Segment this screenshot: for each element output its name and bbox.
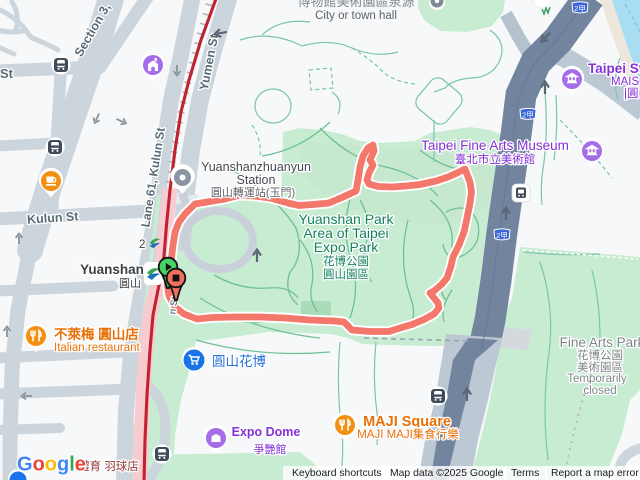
svg-text:Taipei St: Taipei St — [588, 61, 640, 76]
svg-text:美術園區: 美術園區 — [577, 360, 623, 374]
svg-text:MAJI MAJI集食行樂: MAJI MAJI集食行樂 — [357, 427, 459, 441]
svg-text:圓山: 圓山 — [119, 277, 141, 290]
svg-text:Yuanshanzhuanyun: Yuanshanzhuanyun — [201, 160, 311, 174]
svg-text:Italian restaurant: Italian restaurant — [54, 342, 140, 354]
svg-text:St: St — [0, 66, 14, 81]
svg-text:花博公園: 花博公園 — [323, 255, 369, 268]
svg-text:Keyboard shortcuts: Keyboard shortcuts — [292, 468, 382, 479]
svg-text:Expo Park: Expo Park — [314, 239, 380, 255]
svg-text:Google: Google — [17, 454, 86, 476]
svg-text:Station: Station — [237, 173, 276, 187]
svg-text:爭艷館: 爭艷館 — [254, 442, 287, 456]
svg-text:City or town hall: City or town hall — [315, 10, 397, 22]
svg-text:體育 羽球店: 體育 羽球店 — [78, 459, 139, 473]
svg-text:Report a map error: Report a map error — [551, 468, 639, 479]
svg-text:博物館美術園區泉源: 博物館美術園區泉源 — [297, 0, 414, 9]
svg-text:不萊梅 圓山店: 不萊梅 圓山店 — [54, 326, 139, 342]
svg-text:圓山花博: 圓山花博 — [212, 353, 266, 369]
svg-text:Terms: Terms — [511, 468, 539, 479]
svg-text:圓山轉運站(玉門): 圓山轉運站(玉門) — [211, 185, 295, 199]
svg-text:MAJI Square: MAJI Square — [363, 414, 451, 430]
svg-text:MAISON: MAISON — [611, 76, 640, 88]
svg-text:花博公園: 花博公園 — [577, 349, 623, 362]
svg-text:Temporarily: Temporarily — [567, 373, 627, 385]
svg-text:Fine Arts Park: Fine Arts Park — [560, 335, 640, 350]
svg-text:closed: closed — [583, 385, 616, 397]
svg-text:|圓山: |圓山 — [624, 87, 640, 100]
svg-text:圓山園區: 圓山園區 — [323, 268, 369, 281]
svg-text:臺北市立美術館: 臺北市立美術館 — [455, 152, 536, 166]
svg-text:Map data ©2025 Google: Map data ©2025 Google — [390, 468, 504, 479]
svg-text:2: 2 — [139, 239, 145, 251]
svg-text:Expo Dome: Expo Dome — [232, 425, 301, 439]
svg-text:Taipei Fine Arts Museum: Taipei Fine Arts Museum — [421, 138, 569, 153]
svg-text:Yuanshan: Yuanshan — [80, 262, 144, 277]
